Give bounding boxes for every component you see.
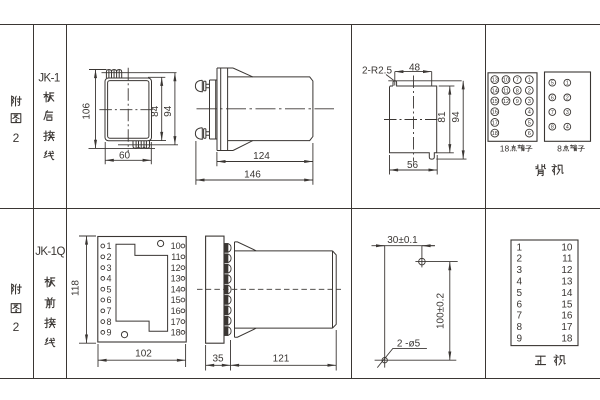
svg-text:15: 15 — [492, 99, 498, 105]
svg-text:4: 4 — [566, 125, 569, 131]
svg-text:7: 7 — [551, 110, 554, 116]
svg-text:17: 17 — [492, 120, 498, 126]
svg-text:106: 106 — [82, 103, 93, 120]
svg-text:2-R2.5: 2-R2.5 — [362, 66, 392, 77]
svg-text:11: 11 — [503, 88, 509, 94]
svg-text:5: 5 — [528, 120, 531, 126]
svg-text:8: 8 — [517, 322, 523, 333]
svg-text:4: 4 — [107, 274, 112, 284]
svg-text:8: 8 — [107, 317, 112, 327]
svg-text:3: 3 — [107, 263, 112, 273]
svg-text:12: 12 — [561, 265, 573, 276]
svg-text:9: 9 — [517, 334, 523, 345]
svg-text:5: 5 — [107, 284, 112, 294]
svg-text:2: 2 — [13, 320, 20, 334]
svg-text:JK-1Q: JK-1Q — [35, 246, 65, 258]
svg-text:9: 9 — [107, 328, 112, 338]
svg-text:13: 13 — [561, 277, 573, 288]
svg-text:56: 56 — [407, 160, 419, 171]
svg-text:4: 4 — [528, 110, 531, 116]
svg-text:6: 6 — [517, 299, 523, 310]
svg-text:48: 48 — [409, 62, 421, 73]
svg-text:14: 14 — [171, 284, 181, 294]
svg-text:1: 1 — [528, 78, 531, 84]
svg-text:8: 8 — [516, 88, 519, 94]
svg-text:35: 35 — [212, 354, 224, 365]
svg-text:2: 2 — [566, 95, 569, 101]
svg-text:9: 9 — [516, 99, 519, 105]
svg-text:3: 3 — [528, 99, 531, 105]
svg-text:3: 3 — [517, 265, 523, 276]
svg-text:18: 18 — [500, 144, 510, 154]
svg-text:1: 1 — [107, 241, 112, 251]
svg-text:60: 60 — [119, 151, 131, 162]
svg-text:2: 2 — [528, 88, 531, 94]
svg-text:11: 11 — [562, 254, 573, 265]
svg-text:18: 18 — [492, 131, 498, 137]
svg-text:17: 17 — [171, 317, 181, 327]
svg-text:3: 3 — [566, 110, 569, 116]
svg-text:16: 16 — [561, 311, 573, 322]
svg-text:13: 13 — [492, 78, 498, 84]
svg-text:81: 81 — [437, 111, 448, 123]
svg-text:84: 84 — [150, 105, 161, 117]
svg-text:16: 16 — [492, 110, 498, 116]
svg-text:100±0.2: 100±0.2 — [436, 293, 447, 330]
svg-text:7: 7 — [516, 78, 519, 84]
svg-text:121: 121 — [273, 354, 290, 365]
svg-text:124: 124 — [253, 151, 270, 162]
svg-text:13: 13 — [171, 274, 181, 284]
svg-text:2: 2 — [13, 131, 20, 145]
svg-text:15: 15 — [171, 295, 181, 305]
svg-text:7: 7 — [517, 311, 523, 322]
svg-text:15: 15 — [561, 299, 573, 310]
svg-text:118: 118 — [71, 280, 82, 296]
svg-text:2: 2 — [517, 254, 523, 265]
svg-text:17: 17 — [561, 322, 573, 333]
svg-text:12: 12 — [503, 99, 509, 105]
svg-text:2 -ø5: 2 -ø5 — [397, 338, 421, 349]
svg-text:1: 1 — [566, 81, 569, 87]
svg-text:94: 94 — [451, 111, 462, 123]
svg-text:7: 7 — [107, 306, 112, 316]
svg-text:11: 11 — [171, 252, 180, 262]
svg-text:6: 6 — [528, 131, 531, 137]
svg-text:14: 14 — [561, 288, 573, 299]
svg-text:8: 8 — [551, 125, 554, 131]
svg-text:10: 10 — [561, 242, 573, 253]
svg-text:10: 10 — [503, 78, 509, 84]
svg-text:94: 94 — [163, 105, 174, 117]
svg-text:16: 16 — [171, 306, 181, 316]
svg-text:146: 146 — [244, 170, 261, 181]
svg-text:6: 6 — [107, 295, 112, 305]
svg-text:18: 18 — [561, 334, 573, 345]
svg-text:6: 6 — [551, 95, 554, 101]
svg-text:30±0.1: 30±0.1 — [387, 235, 418, 246]
svg-text:12: 12 — [171, 263, 181, 273]
svg-text:14: 14 — [492, 88, 498, 94]
svg-text:4: 4 — [517, 277, 523, 288]
svg-text:10: 10 — [171, 241, 181, 251]
svg-text:JK-1: JK-1 — [38, 73, 59, 85]
svg-text:1: 1 — [517, 242, 523, 253]
svg-text:102: 102 — [135, 349, 152, 360]
svg-text:18: 18 — [171, 328, 181, 338]
svg-text:5: 5 — [551, 81, 554, 87]
svg-text:8: 8 — [557, 144, 562, 154]
svg-text:5: 5 — [517, 288, 523, 299]
svg-text:2: 2 — [107, 252, 112, 262]
